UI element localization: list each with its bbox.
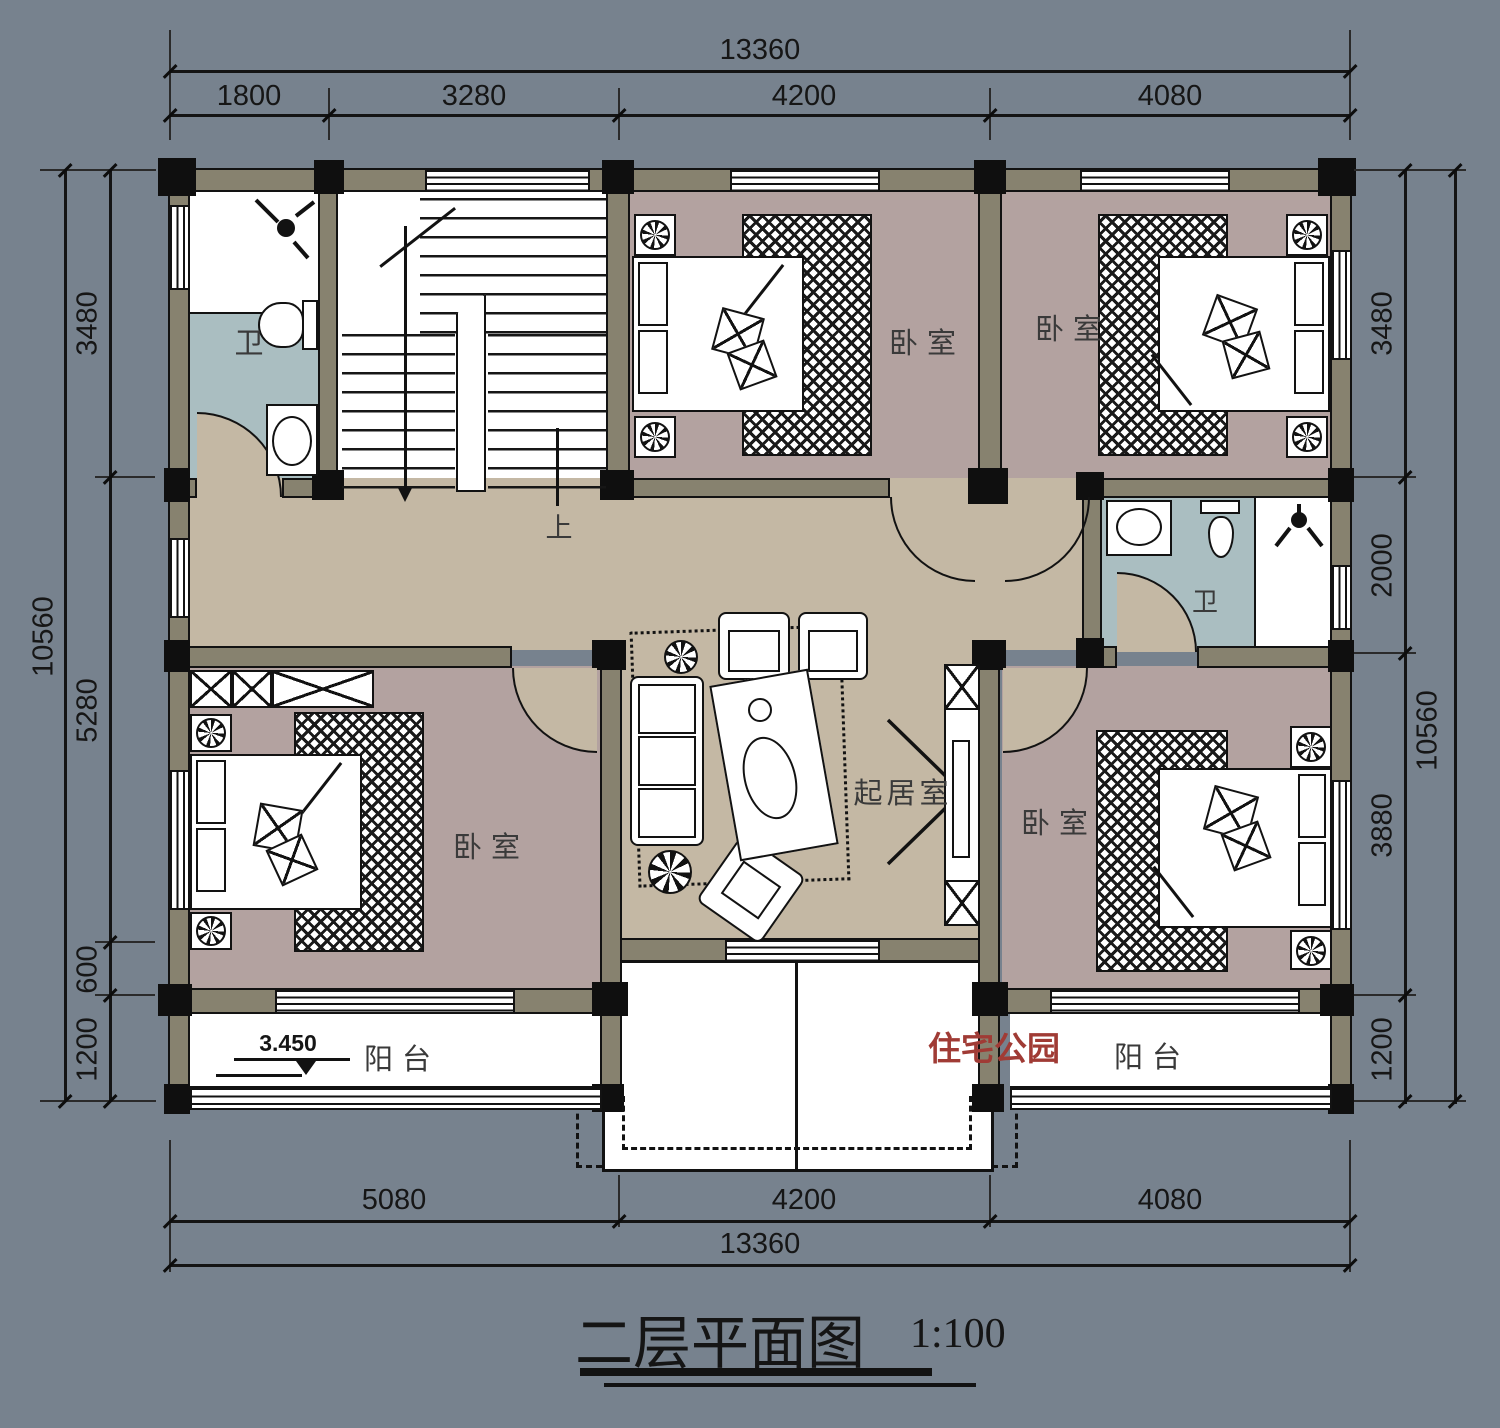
room-label-bath1: 卫 (214, 320, 284, 362)
window-bath1-left (168, 205, 190, 290)
dim-left-seg3: 600 (72, 930, 105, 1010)
wall-stairs-bedroom1 (606, 168, 630, 480)
dim-right-seg4: 1200 (1367, 1005, 1400, 1095)
window-bedroom4-south (1050, 988, 1300, 1014)
column (602, 160, 634, 194)
lamp-icon (196, 718, 226, 748)
stair-flight-right (488, 334, 606, 490)
lamp-icon (640, 220, 670, 250)
pillow (1294, 330, 1324, 394)
roof-dashed-line (576, 1104, 602, 1168)
extension-line (1354, 1100, 1466, 1102)
lamp-icon (1292, 220, 1322, 250)
balcony-railing (1010, 1086, 1332, 1110)
window-bath2-right (1330, 565, 1352, 630)
sink-icon (272, 416, 312, 466)
lamp-icon (1296, 936, 1326, 966)
column (592, 982, 628, 1016)
dim-left-seg2: 5280 (72, 661, 105, 761)
plant-icon (664, 640, 698, 674)
title-underline-thin (604, 1383, 976, 1387)
room-label-bedroom2: 卧室 (1008, 306, 1138, 348)
wall-hall-top-d (1090, 478, 1352, 498)
dimension-line (170, 114, 1350, 117)
extension-line (1354, 169, 1466, 171)
window-bedroom1-top (730, 168, 880, 192)
column (158, 158, 196, 196)
room-label-bedroom3: 卧室 (426, 824, 556, 866)
column (974, 160, 1006, 194)
window-stairwell-top (425, 168, 590, 192)
elevation-line (234, 1058, 350, 1061)
column (164, 640, 190, 672)
lamp-icon (640, 422, 670, 452)
elevation-line (216, 1074, 302, 1077)
room-label-bedroom1: 卧室 (862, 320, 992, 362)
stair-stringer (456, 294, 486, 492)
wall-hall-bottom-a (168, 646, 512, 668)
drawing-scale: 1:100 (910, 1310, 1040, 1360)
column (972, 982, 1008, 1016)
pillow (1294, 262, 1324, 326)
window-bedroom2-top (1080, 168, 1230, 192)
dim-right-seg3: 3880 (1367, 776, 1400, 876)
wall-bath1-stairs (318, 188, 338, 480)
room-label-bath2: 卫 (1170, 582, 1240, 619)
lamp-icon (196, 916, 226, 946)
sofa-cushion (638, 736, 696, 786)
dimension-line (64, 170, 67, 1102)
window-bedroom4-right (1330, 780, 1352, 930)
stair-treads-upper (420, 198, 606, 334)
roof-dashed-line (992, 1104, 1018, 1168)
extension-line (95, 476, 155, 478)
extension-line (169, 1140, 171, 1272)
wall-hall-top-c (606, 478, 890, 498)
lamp-icon (1296, 732, 1326, 762)
window-living-south (725, 938, 880, 962)
table-deco (748, 698, 772, 722)
dim-bottom-seg1: 5080 (334, 1184, 454, 1217)
pillow (1298, 774, 1326, 838)
title-underline-thick (580, 1368, 932, 1376)
column (1320, 984, 1354, 1016)
watermark: 住宅公园 (928, 1022, 1098, 1070)
pillow (1298, 842, 1326, 906)
sink-icon (1116, 508, 1162, 546)
dim-right-total: 10560 (1412, 671, 1445, 791)
pillow (196, 760, 226, 824)
extension-line (40, 169, 156, 171)
column (1076, 638, 1104, 668)
drawing-title: 二层平面图 (575, 1296, 895, 1366)
column (1328, 468, 1354, 502)
toilet-tank (302, 300, 318, 350)
armchair-cushion (728, 630, 780, 672)
column (1076, 472, 1104, 500)
dim-top-seg1: 1800 (189, 80, 309, 113)
dim-top-seg4: 4080 (1110, 80, 1230, 113)
extension-line (169, 30, 171, 140)
column (164, 1084, 190, 1114)
shower-icon (1268, 500, 1330, 562)
dim-left-total: 10560 (28, 577, 61, 697)
column (592, 640, 626, 670)
dim-top-total: 13360 (690, 34, 830, 67)
column (158, 984, 192, 1016)
porch-dashed-outline (622, 1096, 972, 1150)
window-bedroom2-right (1330, 250, 1352, 360)
dim-top-seg3: 4200 (744, 80, 864, 113)
window-bedroom3-south (275, 988, 515, 1014)
shower-icon (250, 194, 320, 264)
dim-bottom-seg2: 4200 (744, 1184, 864, 1217)
elevation-value: 3.450 (238, 1030, 338, 1058)
pillow (638, 262, 668, 326)
dim-bottom-seg3: 4080 (1110, 1184, 1230, 1217)
window-bedroom3-left (168, 770, 190, 910)
dim-left-seg1: 3480 (72, 274, 105, 374)
pillow (638, 330, 668, 394)
dim-right-seg2: 2000 (1367, 516, 1400, 616)
column (1328, 640, 1354, 672)
room-label-living: 起居室 (828, 770, 978, 812)
toilet-tank (1200, 500, 1240, 514)
lamp-icon (1292, 422, 1322, 452)
sofa-cushion (638, 788, 696, 838)
wall-living-left (600, 646, 622, 1112)
dim-left-seg4: 1200 (72, 1005, 105, 1095)
window-hall-left (168, 538, 190, 618)
dimension-line (170, 70, 1350, 73)
floor-plan-canvas: 3.450 卫 卫 卧室 卧室 卧室 卧室 起居室 阳台 阳台 上 住宅公园 1… (0, 0, 1500, 1428)
dimension-line (109, 170, 112, 1102)
tv-cabinet-end (944, 880, 980, 926)
extension-line (40, 1100, 156, 1102)
extension-line (1349, 1140, 1351, 1272)
dimension-line (170, 1264, 1350, 1267)
extension-line (1349, 30, 1351, 140)
column (1318, 158, 1356, 196)
wardrobe (272, 670, 374, 708)
room-label-balcony-left: 阳台 (342, 1036, 462, 1078)
sofa-cushion (638, 684, 696, 734)
wardrobe (190, 670, 232, 708)
elevation-triangle-icon (296, 1061, 316, 1075)
stair-direction-line (404, 226, 407, 488)
pillow (196, 828, 226, 892)
wardrobe (232, 670, 272, 708)
dim-right-seg1: 3480 (1367, 274, 1400, 374)
balcony-railing (190, 1086, 602, 1110)
stair-flight-left (342, 334, 455, 490)
room-label-balcony-right: 阳台 (1092, 1034, 1212, 1076)
plant-icon (648, 850, 692, 894)
dimension-line (1454, 170, 1457, 1104)
dimension-line (1404, 170, 1407, 1104)
armchair-cushion (808, 630, 858, 672)
dim-bottom-total: 13360 (690, 1228, 830, 1261)
stair-up-label: 上 (524, 506, 594, 545)
column (164, 468, 190, 502)
stair-direction-arrowhead (398, 488, 412, 502)
dim-top-seg2: 3280 (414, 80, 534, 113)
stair-up-line (556, 428, 559, 506)
column (314, 160, 344, 194)
tv-cabinet-end (944, 664, 980, 710)
dimension-line (170, 1220, 1350, 1223)
room-label-bedroom4: 卧室 (994, 800, 1124, 842)
